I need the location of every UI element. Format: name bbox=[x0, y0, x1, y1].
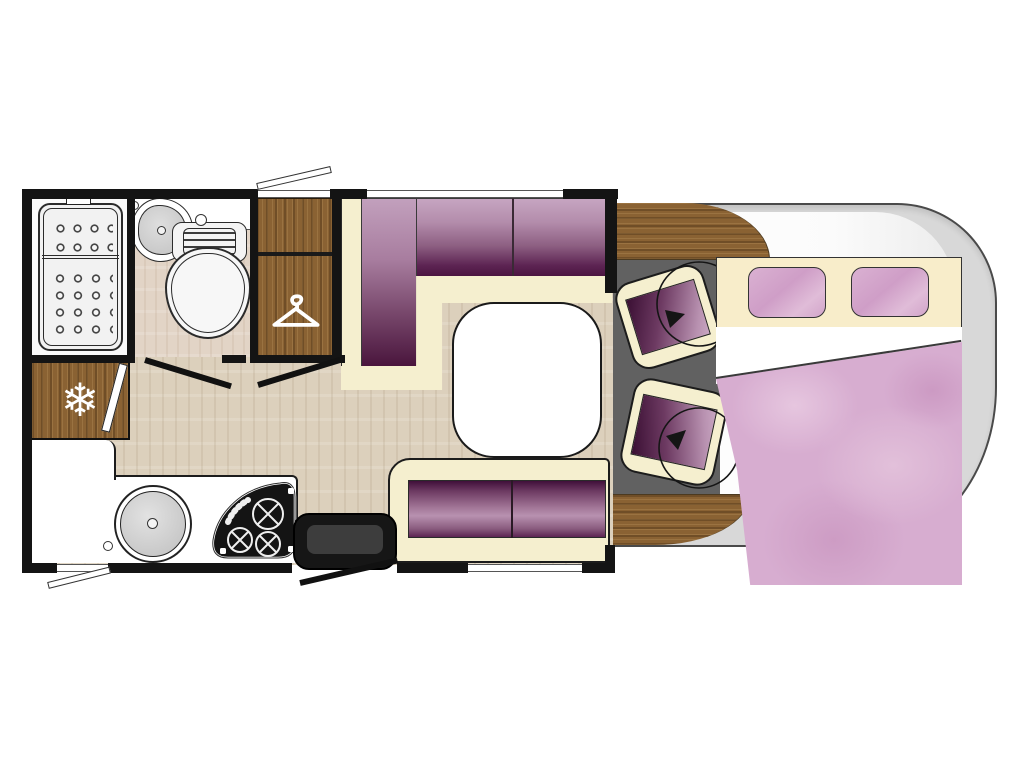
window-top-bathroom bbox=[258, 190, 330, 198]
shower-bench-dots bbox=[48, 215, 113, 253]
kitchen-sink-drain bbox=[147, 518, 158, 529]
dinette-table bbox=[452, 302, 602, 458]
toilet-flush-button bbox=[195, 214, 207, 226]
bench-sofa-cushion-divider bbox=[511, 480, 513, 538]
wall-stub-bottom-right bbox=[605, 545, 615, 573]
washbasin-drain bbox=[157, 226, 166, 235]
partition-shower bbox=[127, 189, 135, 363]
wall-left bbox=[22, 189, 32, 573]
l-sofa-backrest-divider bbox=[512, 198, 514, 278]
partition-door-post bbox=[222, 355, 246, 363]
motorhome-floorplan: ❄ bbox=[0, 0, 1024, 768]
l-sofa-backrest-left bbox=[361, 198, 417, 372]
hanger-icon bbox=[269, 291, 323, 335]
wall-bottom-2 bbox=[108, 563, 292, 573]
hob bbox=[204, 476, 298, 564]
window-bottom-dinette bbox=[468, 564, 582, 572]
window-top-dinette bbox=[367, 190, 563, 198]
bed-pillow-left bbox=[748, 267, 826, 318]
wardrobe-wall-left bbox=[250, 189, 258, 363]
wardrobe bbox=[256, 198, 334, 360]
wall-bottom-1 bbox=[22, 563, 57, 573]
wall-top-1 bbox=[22, 189, 258, 199]
wardrobe-wall-right bbox=[332, 189, 341, 363]
bench-sofa-cushion bbox=[408, 480, 606, 538]
partition-under-shower bbox=[22, 355, 135, 363]
wall-bottom-3 bbox=[397, 563, 468, 573]
wall-stub-top-right bbox=[605, 189, 617, 293]
entrance-step-inner bbox=[307, 525, 383, 554]
snowflake-icon: ❄ bbox=[61, 377, 100, 423]
window-flap-top bbox=[256, 166, 332, 190]
shower-divider bbox=[42, 255, 119, 259]
shower-tray bbox=[38, 203, 123, 351]
kitchen-counter-corner bbox=[32, 440, 116, 480]
toilet-bowl-inner bbox=[171, 253, 245, 333]
bed-pillow-right bbox=[851, 267, 929, 317]
wardrobe-shelf-divider bbox=[257, 252, 333, 256]
kitchen-tap bbox=[103, 541, 113, 551]
shower-drain-dots bbox=[48, 267, 113, 341]
